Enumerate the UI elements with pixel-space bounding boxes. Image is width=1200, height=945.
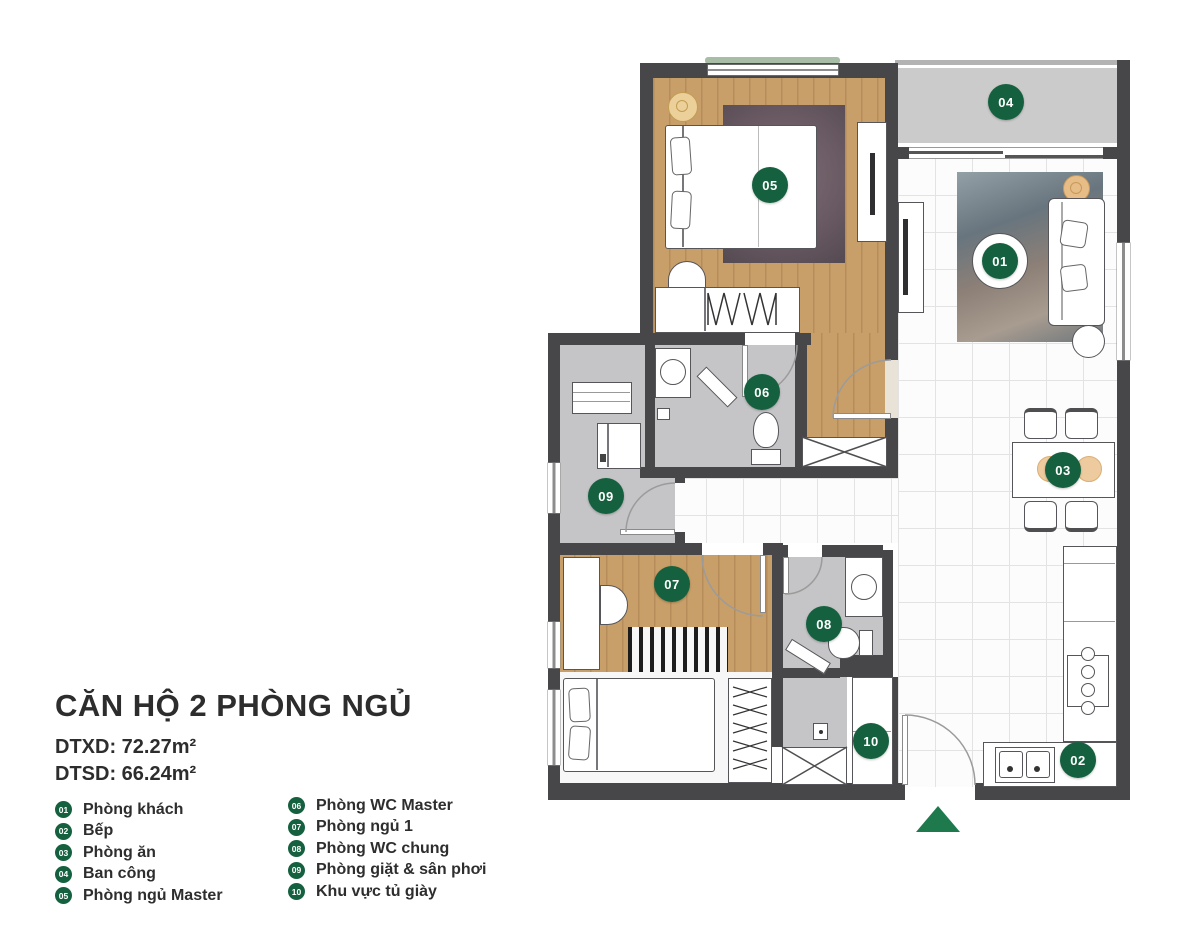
room-badge-03: 03 xyxy=(1045,452,1081,488)
bedroom1-striped-rug xyxy=(628,627,728,672)
master-lamp xyxy=(668,92,698,122)
master-wardrobe-divider xyxy=(704,288,706,331)
laundry-rack-bar-2 xyxy=(573,401,630,402)
legend-badge-04: 04 xyxy=(55,866,72,883)
stove-burner-4 xyxy=(1081,701,1095,715)
dining-chair-1 xyxy=(1024,408,1057,439)
stove xyxy=(1067,655,1109,707)
sliding-door-stub-right xyxy=(1103,147,1117,159)
utility-drain-dot xyxy=(819,730,823,734)
wall-wc-common-top-stub xyxy=(783,545,788,557)
area-dtsd-value: 66.24m² xyxy=(122,763,197,785)
utility-drain xyxy=(813,723,828,740)
wall-wc-common-top xyxy=(822,545,883,557)
balcony-sliding-door xyxy=(895,147,1117,159)
legend-item-01: 01Phòng khách xyxy=(55,801,223,818)
area-dtxd-value: 72.27m² xyxy=(122,736,197,758)
master-pillow-2 xyxy=(670,191,692,230)
legend-badge-06: 06 xyxy=(288,797,305,814)
wc-master-toilet xyxy=(751,412,781,466)
plant-pot-inner xyxy=(1070,182,1082,194)
utility-closet xyxy=(782,747,847,785)
room-badge-04: 04 xyxy=(988,84,1024,120)
master-wardrobe xyxy=(655,287,800,333)
legend-badge-02: 02 xyxy=(55,823,72,840)
kitchen-sink-basin-1 xyxy=(999,751,1023,778)
wc-master-sink-counter xyxy=(655,348,691,398)
area-dtxd: DTXD: 72.27m² xyxy=(55,736,196,759)
laundry-rack xyxy=(572,382,632,414)
side-table xyxy=(1072,325,1105,358)
legend-item-05: 05Phòng ngủ Master xyxy=(55,887,223,904)
sofa-seat-line xyxy=(1061,202,1063,320)
legend-label-01: Phòng khách xyxy=(83,801,183,819)
bedroom1-bed-headboard-line xyxy=(596,679,598,770)
legend-label-05: Phòng ngủ Master xyxy=(83,887,223,905)
wall-wcmaster-bottom xyxy=(640,467,898,478)
floor-plan: 01020304050607080910 xyxy=(545,55,1137,845)
legend-item-09: 09Phòng giặt & sân phơi xyxy=(288,862,486,879)
master-door-leaf xyxy=(833,413,891,419)
master-door-threshold xyxy=(885,360,898,418)
bedroom1-door-leaf xyxy=(760,555,766,613)
wall-master-bottom xyxy=(548,333,745,345)
wall-wc-common-bottom xyxy=(783,668,840,678)
wc-master-drain xyxy=(657,408,670,420)
laundry-door-leaf xyxy=(620,529,675,535)
wall-bottom-left xyxy=(548,783,905,800)
kitchen-sink-drain-1 xyxy=(1007,766,1013,772)
legend-label-10: Khu vực tủ giày xyxy=(316,883,437,901)
master-tv-cabinet xyxy=(857,122,887,242)
wc-common-door-leaf xyxy=(783,557,789,594)
legend-badge-10: 10 xyxy=(288,883,305,900)
area-dtsd-label: DTSD: xyxy=(55,763,116,785)
legend-item-07: 07Phòng ngủ 1 xyxy=(288,819,486,836)
master-pillow-1 xyxy=(670,136,693,175)
room-badge-05: 05 xyxy=(752,167,788,203)
stove-burner-2 xyxy=(1081,665,1095,679)
room-badge-01: 01 xyxy=(982,243,1018,279)
sliding-door-stub-left xyxy=(895,147,909,159)
wall-wardrobe-utility xyxy=(772,672,783,747)
wc-common-toilet-tank xyxy=(859,630,873,656)
sofa xyxy=(1048,198,1105,326)
bedroom1-pillow-2 xyxy=(568,725,591,760)
wc-common-sink-counter xyxy=(845,557,883,617)
wall-bedroom1-top-right xyxy=(763,543,783,555)
room-badge-09: 09 xyxy=(588,478,624,514)
room-badge-08: 08 xyxy=(806,606,842,642)
room-badge-06: 06 xyxy=(744,374,780,410)
laundry-window xyxy=(548,463,560,513)
room-badge-07: 07 xyxy=(654,566,690,602)
kitchen-sink xyxy=(995,747,1055,783)
legend-label-09: Phòng giặt & sân phơi xyxy=(316,861,486,879)
stove-burner-1 xyxy=(1081,647,1095,661)
legend-badge-08: 08 xyxy=(288,840,305,857)
legend-item-06: 06Phòng WC Master xyxy=(288,797,486,814)
kitchen-counter-line-1 xyxy=(1064,563,1115,564)
dining-chair-2 xyxy=(1065,408,1098,439)
master-corridor-floor xyxy=(805,333,885,438)
sofa-pillow-1 xyxy=(1059,219,1089,249)
wc-master-toilet-tank xyxy=(751,449,781,465)
legend-badge-07: 07 xyxy=(288,819,305,836)
balcony-railing xyxy=(895,60,1117,65)
living-tv-console xyxy=(898,202,924,313)
area-dtxd-label: DTXD: xyxy=(55,736,116,758)
legend-item-10: 10Khu vực tủ giày xyxy=(288,883,486,900)
washing-machine-panel xyxy=(607,424,609,467)
legend-label-08: Phòng WC chung xyxy=(316,840,449,858)
legend-badge-09: 09 xyxy=(288,862,305,879)
kitchen-sink-drain-2 xyxy=(1034,766,1040,772)
legend-label-07: Phòng ngủ 1 xyxy=(316,818,413,836)
legend-item-03: 03Phòng ăn xyxy=(55,844,223,861)
area-dtsd: DTSD: 66.24m² xyxy=(55,763,196,786)
wc-master-basin xyxy=(660,359,686,385)
legend-badge-03: 03 xyxy=(55,844,72,861)
stove-burner-3 xyxy=(1081,683,1095,697)
bedroom1-pillow-1 xyxy=(568,687,591,722)
wall-master-left xyxy=(640,63,653,333)
page-title: CĂN HỘ 2 PHÒNG NGỦ xyxy=(55,688,412,724)
master-window xyxy=(708,65,838,75)
legend-label-03: Phòng ăn xyxy=(83,844,156,862)
master-lamp-inner xyxy=(676,100,688,112)
wall-laundry-wcmaster xyxy=(645,345,655,467)
legend-badge-05: 05 xyxy=(55,887,72,904)
floor-plan-page: CĂN HỘ 2 PHÒNG NGỦ DTXD: 72.27m² DTSD: 6… xyxy=(0,0,1200,945)
living-window xyxy=(1117,243,1130,360)
living-tv-screen xyxy=(903,219,908,295)
wall-laundry-hall-stub-top xyxy=(675,478,685,483)
wall-outer-right xyxy=(1117,60,1130,800)
legend-label-06: Phòng WC Master xyxy=(316,797,453,815)
wall-bedroom1-wc xyxy=(772,555,783,672)
wall-shoe-cabinet-right xyxy=(893,677,898,787)
dining-chair-3 xyxy=(1024,501,1057,532)
legend-item-08: 08Phòng WC chung xyxy=(288,840,486,857)
bedroom1-desk xyxy=(563,557,600,670)
bedroom1-window-2 xyxy=(548,690,560,765)
sliding-panel-2 xyxy=(1005,155,1105,158)
kitchen-sink-basin-2 xyxy=(1026,751,1050,778)
kitchen-counter-line-2 xyxy=(1064,621,1115,622)
wc-common-basin xyxy=(851,574,877,600)
legend-label-04: Ban công xyxy=(83,865,156,883)
dining-chair-4 xyxy=(1065,501,1098,532)
entrance-door-leaf xyxy=(902,715,908,785)
wall-wcmaster-corridor xyxy=(795,333,807,430)
wall-laundry-hall-stub-bottom xyxy=(675,532,685,543)
bedroom1-wardrobe xyxy=(728,678,772,783)
legend-label-02: Bếp xyxy=(83,822,113,840)
legend-item-04: 04Ban công xyxy=(55,866,223,883)
bedroom1-window-1 xyxy=(548,622,560,668)
sofa-pillow-2 xyxy=(1060,264,1089,293)
washing-machine-knob xyxy=(600,454,606,462)
legend-column-1: 01Phòng khách02Bếp03Phòng ăn04Ban công05… xyxy=(55,801,223,904)
master-tv-screen xyxy=(870,153,875,215)
room-badge-10: 10 xyxy=(853,723,889,759)
legend-badge-01: 01 xyxy=(55,801,72,818)
legend-item-02: 02Bếp xyxy=(55,823,223,840)
sliding-panel-1 xyxy=(903,151,1003,154)
room-badge-02: 02 xyxy=(1060,742,1096,778)
wall-bedroom1-top xyxy=(557,543,702,555)
hall-closet xyxy=(802,437,887,467)
washing-machine xyxy=(597,423,641,469)
legend-column-2: 06Phòng WC Master07Phòng ngủ 108Phòng WC… xyxy=(288,797,486,900)
entrance-arrow xyxy=(916,806,960,832)
wc-master-toilet-bowl xyxy=(753,412,779,448)
laundry-rack-bar-1 xyxy=(573,392,630,393)
